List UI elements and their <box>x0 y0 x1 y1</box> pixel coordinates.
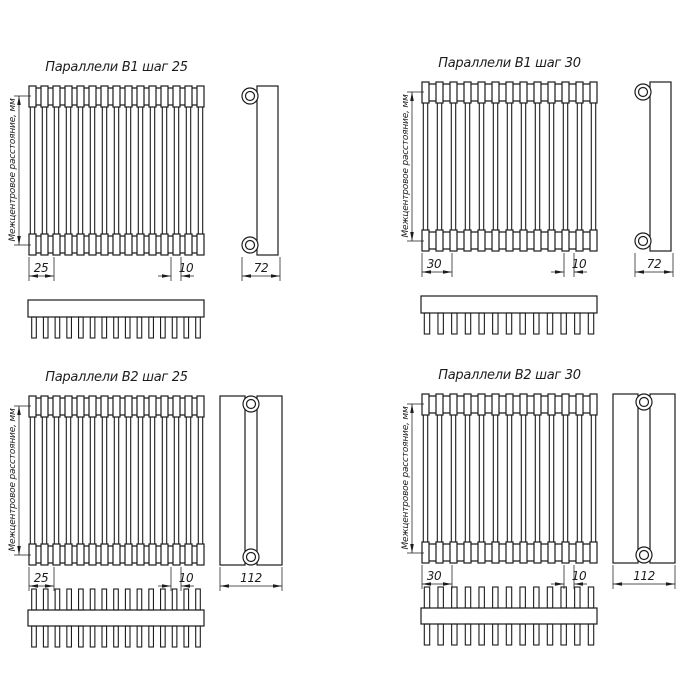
center-distance-axis-label: Межцентровое расстояние, мм <box>401 80 413 252</box>
drawing-title: Параллели В1 шаг 30 <box>422 56 597 71</box>
drawing-title: Параллели В2 шаг 30 <box>422 368 597 383</box>
radiator-linework-svg <box>398 368 698 660</box>
center-distance-axis-label: Межцентровое расстояние, мм <box>8 84 20 256</box>
step-dimension-label: 30 <box>418 569 450 583</box>
step-dimension-label: 25 <box>25 571 57 585</box>
center-distance-axis-label: Межцентровое расстояние, мм <box>401 392 413 564</box>
end-dimension-label: 10 <box>170 571 202 585</box>
step-dimension-label: 25 <box>25 261 57 275</box>
depth-dimension-label: 112 <box>624 569 664 583</box>
quadrant-b2-step25: Параллели В2 шаг 25 Межцентровое расстоя… <box>5 370 305 662</box>
quadrant-b1-step25: Параллели В1 шаг 25 Межцентровое расстоя… <box>5 60 305 352</box>
end-dimension-label: 10 <box>563 569 595 583</box>
depth-dimension-label: 72 <box>634 257 674 271</box>
radiator-linework-svg <box>398 56 698 348</box>
end-dimension-label: 10 <box>170 261 202 275</box>
drawing-title: Параллели В1 шаг 25 <box>29 60 204 75</box>
center-distance-axis-label: Межцентровое расстояние, мм <box>8 394 20 566</box>
drawing-title: Параллели В2 шаг 25 <box>29 370 204 385</box>
end-dimension-label: 10 <box>563 257 595 271</box>
radiator-linework-svg <box>5 60 305 352</box>
depth-dimension-label: 112 <box>231 571 271 585</box>
depth-dimension-label: 72 <box>241 261 281 275</box>
quadrant-b1-step30: Параллели В1 шаг 30 Межцентровое расстоя… <box>398 56 698 348</box>
quadrant-b2-step30: Параллели В2 шаг 30 Межцентровое расстоя… <box>398 368 698 660</box>
radiator-linework-svg <box>5 370 305 662</box>
step-dimension-label: 30 <box>418 257 450 271</box>
technical-drawing-sheet: Параллели В1 шаг 25 Межцентровое расстоя… <box>0 0 700 700</box>
